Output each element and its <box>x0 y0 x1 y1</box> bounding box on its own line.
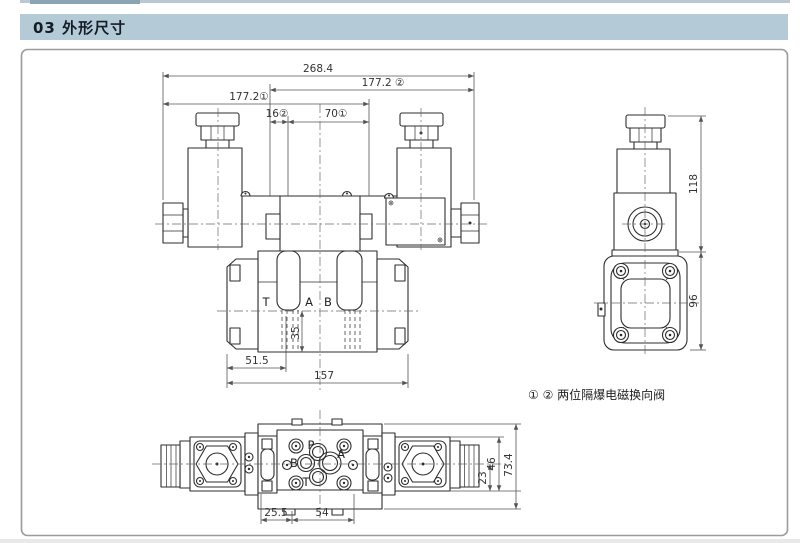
dimension-drawing: T A B 268.4 17 <box>0 0 800 543</box>
dim-lower-height: 96 <box>688 294 700 308</box>
port-label-a: A <box>305 295 313 309</box>
port-label-t: T <box>301 475 310 489</box>
bottom-view: P A B T 25.5 54 <box>152 410 521 524</box>
port-label-b: B <box>290 456 298 470</box>
dim-hole-spacing: 54 <box>315 507 329 519</box>
dim-edge-offset: 25.5 <box>264 507 287 519</box>
dim-upper-height: 118 <box>688 174 700 194</box>
left-end-nut <box>163 203 188 243</box>
left-solenoid <box>188 148 242 247</box>
dim-base-depth: 35 <box>290 326 302 339</box>
subplate <box>227 251 408 352</box>
right-end-nut <box>451 203 479 243</box>
dim-overall-height: 73.4 <box>503 453 515 477</box>
side-view: 118 96 <box>594 107 706 357</box>
dim-screw-offset: 16② <box>266 108 289 120</box>
nameplate <box>386 198 445 245</box>
dim-screw-spacing: 70① <box>325 108 348 120</box>
dim-overall-width: 268.4 <box>303 63 333 75</box>
page: 03 外形尺寸 <box>0 0 800 543</box>
bottom-left-nut <box>161 441 192 488</box>
port-label-b: B <box>324 295 332 309</box>
dim-width-to-right: 177.2 ② <box>362 77 405 89</box>
bottom-divider <box>0 539 800 543</box>
front-view: T A B 268.4 17 <box>155 63 487 390</box>
left-cable-gland-icon <box>196 113 239 148</box>
left-plug <box>266 214 280 239</box>
right-plug <box>360 214 372 239</box>
port-label-a: A <box>337 447 345 461</box>
dim-body-height: 46 <box>486 457 498 471</box>
port-slot-b <box>337 251 362 310</box>
dim-port-offset: 51.5 <box>245 355 268 367</box>
dim-base-width: 157 <box>314 370 334 382</box>
dim-center-to-bottom: 23 <box>477 471 489 484</box>
right-cable-gland-icon <box>400 113 443 148</box>
port-label-p: P <box>308 438 315 452</box>
left-clamp <box>258 436 277 493</box>
right-clamp <box>363 436 382 493</box>
port-slot-t <box>277 251 300 310</box>
side-cable-gland-icon <box>626 115 665 149</box>
note-label: ① ② 两位隔爆电磁换向阀 <box>528 387 665 402</box>
side-solenoid-upper <box>617 149 670 193</box>
port-label-t: T <box>261 295 270 309</box>
bottom-right-nut <box>448 441 479 488</box>
dim-width-to-left: 177.2① <box>229 91 268 103</box>
